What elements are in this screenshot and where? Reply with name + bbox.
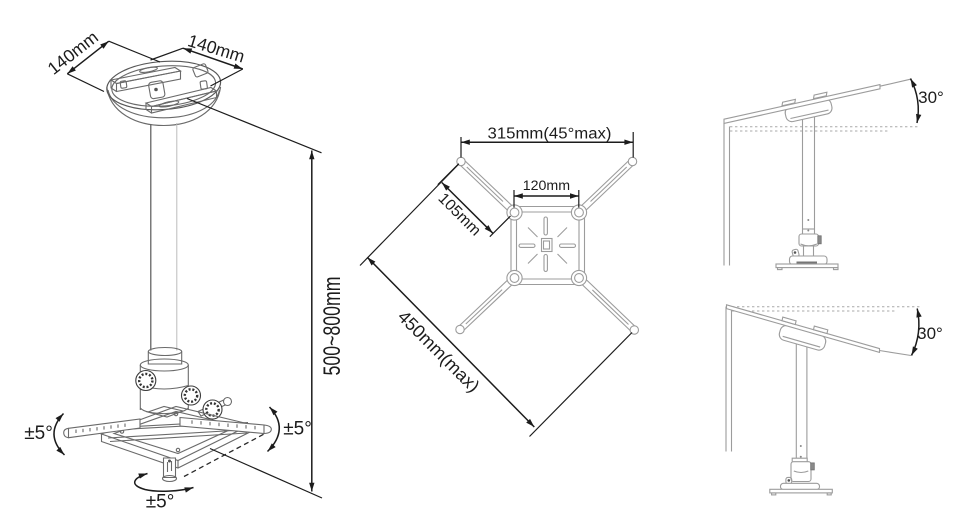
svg-text:±5°: ±5° <box>24 423 53 444</box>
svg-text:500~800mm: 500~800mm <box>319 277 346 376</box>
svg-text:±5°: ±5° <box>146 492 175 513</box>
svg-text:30°: 30° <box>917 324 943 343</box>
svg-text:±5°: ±5° <box>283 419 312 440</box>
svg-text:120mm: 120mm <box>523 178 570 194</box>
svg-text:30°: 30° <box>918 88 944 107</box>
svg-text:315mm(45°max): 315mm(45°max) <box>488 125 612 142</box>
